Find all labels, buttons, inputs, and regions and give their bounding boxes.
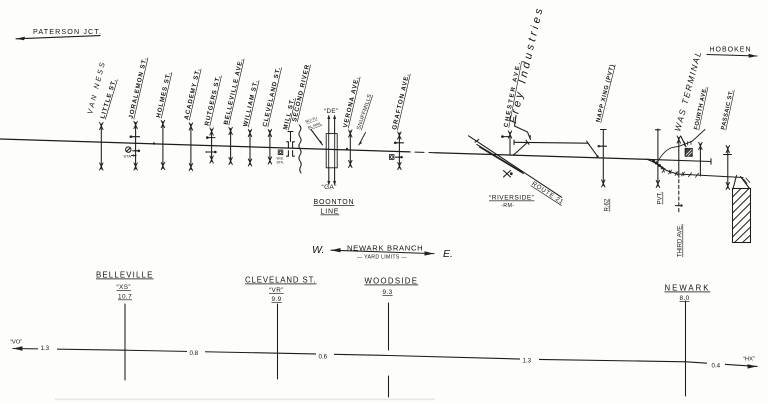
- svg-text:LINE: LINE: [321, 209, 340, 216]
- svg-text:W.: W.: [312, 244, 324, 256]
- svg-text:9.9: 9.9: [272, 296, 282, 303]
- svg-text:PVT.: PVT.: [658, 191, 664, 204]
- svg-text:R.62: R.62: [605, 198, 611, 211]
- svg-text:0.4: 0.4: [712, 363, 721, 370]
- svg-text:E.: E.: [443, 248, 453, 260]
- svg-text:“XS”: “XS”: [117, 284, 131, 291]
- svg-text:8.0: 8.0: [680, 295, 690, 302]
- svg-text:“DE”: “DE”: [324, 108, 338, 115]
- svg-text:BELLEVILLE: BELLEVILLE: [96, 271, 154, 280]
- svg-text:STA: STA: [124, 154, 132, 159]
- svg-text:BOONTON: BOONTON: [314, 199, 355, 206]
- svg-text:NEWARK BRANCH: NEWARK BRANCH: [347, 244, 423, 253]
- svg-text:“RIVERSIDE”: “RIVERSIDE”: [489, 195, 534, 202]
- svg-text:CLEVELAND ST.: CLEVELAND ST.: [245, 276, 317, 285]
- svg-text:1.3: 1.3: [41, 345, 50, 352]
- svg-text:1.3: 1.3: [523, 357, 532, 364]
- svg-text:“HX”: “HX”: [743, 357, 755, 363]
- svg-text:STA.: STA.: [277, 160, 284, 164]
- svg-text:-RM-: -RM-: [501, 203, 515, 209]
- svg-text:“GA”: “GA”: [322, 184, 337, 191]
- svg-text:0.6: 0.6: [319, 353, 328, 360]
- svg-text:NEWARK: NEWARK: [665, 284, 711, 293]
- svg-text:“VR”: “VR”: [269, 287, 284, 294]
- svg-text:0.8: 0.8: [190, 350, 199, 357]
- svg-text:PATERSON JCT.: PATERSON JCT.: [33, 27, 102, 36]
- svg-text:HOBOKEN: HOBOKEN: [710, 47, 752, 54]
- svg-text:9.3: 9.3: [383, 289, 393, 296]
- svg-text:THIRD AVE.: THIRD AVE.: [678, 224, 684, 257]
- svg-text:WOODSIDE: WOODSIDE: [365, 277, 419, 286]
- svg-text:10.7: 10.7: [118, 294, 132, 301]
- svg-text:“VO”: “VO”: [10, 340, 22, 346]
- svg-text:— YARD LIMITS —: — YARD LIMITS —: [357, 255, 407, 261]
